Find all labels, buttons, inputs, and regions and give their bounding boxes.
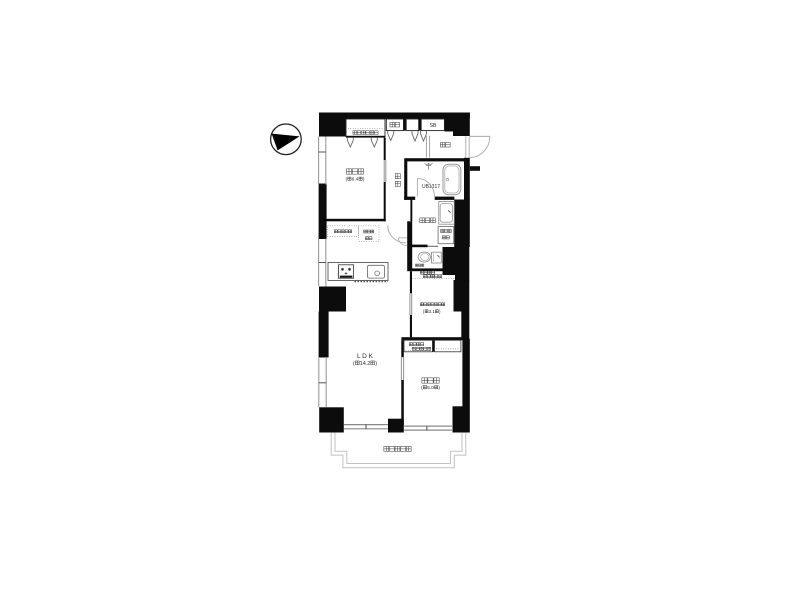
svg-text:3.1: 3.1 [429,309,436,314]
svg-text:L D K: L D K [357,353,374,360]
svg-text:SB: SB [429,123,437,129]
svg-text:UB1317: UB1317 [422,184,440,190]
svg-text:5.0: 5.0 [427,385,434,391]
svg-text:(: ( [353,361,355,367]
svg-text:6.4: 6.4 [352,176,359,182]
svg-text:14.2: 14.2 [360,361,371,367]
svg-text:): ) [375,361,377,367]
